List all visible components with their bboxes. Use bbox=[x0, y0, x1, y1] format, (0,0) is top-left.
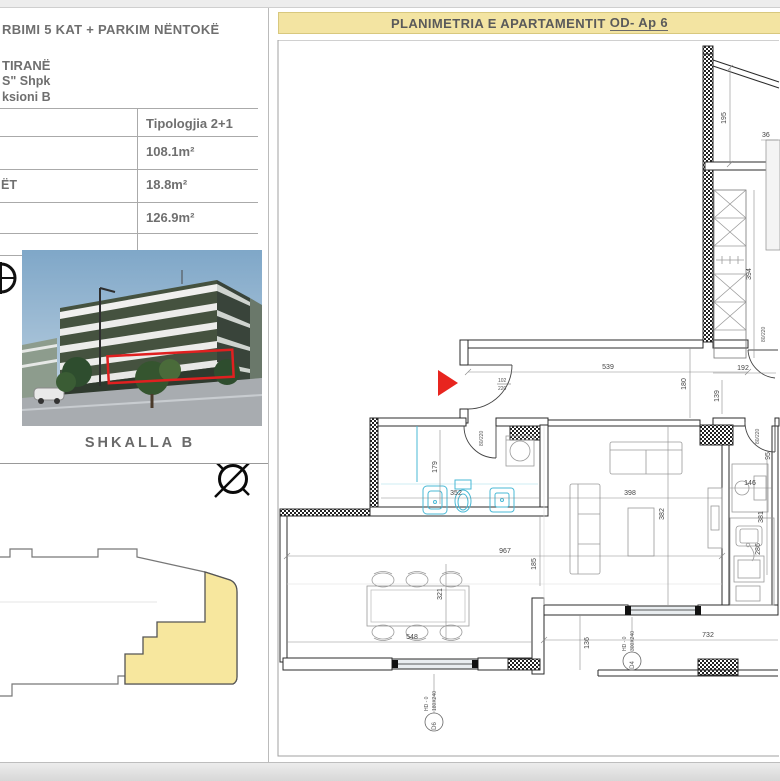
dim-732: 732 bbox=[702, 632, 714, 639]
window-code: HD - 0 bbox=[622, 636, 628, 651]
window-top-strip bbox=[0, 0, 780, 8]
bed-partial bbox=[766, 140, 780, 250]
area-value: 108.1m² bbox=[146, 144, 194, 159]
window-id: D6 bbox=[432, 722, 438, 730]
window-d6 bbox=[392, 659, 478, 669]
project-section: ksioni B bbox=[2, 90, 51, 104]
entry-door-height: 220 bbox=[498, 386, 507, 392]
dim-179: 179 bbox=[432, 461, 439, 473]
project-title: RBIMI 5 KAT + PARKIM NËNTOKË bbox=[2, 22, 220, 37]
dim-286: 286 bbox=[755, 543, 762, 555]
dim-192: 192 bbox=[737, 365, 749, 372]
window-d4 bbox=[625, 606, 701, 615]
typology-header: Tipologjia 2+1 bbox=[146, 116, 233, 131]
dim-36: 36 bbox=[762, 132, 770, 139]
dim-180: 180 bbox=[681, 378, 688, 390]
sheet-title-banner: PLANIMETRIA E APARTAMENTIT OD- Ap 6 bbox=[278, 12, 780, 34]
apartment-id: OD- Ap 6 bbox=[610, 15, 668, 31]
bedroom-door-size: 80/220 bbox=[761, 326, 767, 342]
floor-plan: 195 36 394 192 139 539 180 179 352 398 3… bbox=[270, 40, 780, 762]
compass-icon bbox=[0, 260, 20, 300]
sheet-title: PLANIMETRIA E APARTAMENTIT bbox=[391, 16, 606, 31]
table-row: ËT 18.8m² bbox=[0, 170, 258, 203]
dim-321: 321 bbox=[437, 588, 444, 600]
entry-door-width: 102 bbox=[498, 378, 507, 384]
staircase-caption: SHKALLA B bbox=[0, 435, 280, 451]
north-symbol-icon bbox=[215, 464, 251, 497]
dim-539: 539 bbox=[602, 364, 614, 371]
dim-398: 398 bbox=[624, 490, 636, 497]
dim-185: 185 bbox=[531, 558, 538, 570]
area-value: 18.8m² bbox=[146, 177, 187, 192]
dim-394: 394 bbox=[746, 268, 753, 280]
bath-door-size: 80/220 bbox=[479, 430, 485, 446]
dim-139: 139 bbox=[714, 390, 721, 402]
row-label-fragment: ËT bbox=[1, 178, 17, 192]
dim-136: 136 bbox=[584, 637, 591, 649]
window-code: HD - 0 bbox=[424, 696, 430, 711]
typology-table: Tipologjia 2+1 108.1m² ËT 18.8m² 126.9m² bbox=[0, 108, 258, 256]
project-city: TIRANË bbox=[2, 58, 50, 73]
dim-382: 382 bbox=[659, 508, 666, 520]
table-row: 126.9m² bbox=[0, 203, 258, 234]
dim-146: 146 bbox=[744, 480, 756, 487]
dim-195: 195 bbox=[721, 112, 728, 124]
dim-352: 352 bbox=[450, 490, 462, 497]
dim-95: 95 bbox=[765, 452, 772, 460]
table-header-row: Tipologjia 2+1 bbox=[0, 109, 258, 137]
window-id: D4 bbox=[630, 661, 636, 669]
kitchen-door-size: 80/220 bbox=[755, 428, 761, 444]
title-block-panel: RBIMI 5 KAT + PARKIM NËNTOKË TIRANË S" S… bbox=[0, 8, 269, 762]
dim-548: 548 bbox=[406, 634, 418, 641]
area-value: 126.9m² bbox=[146, 210, 194, 225]
window-bottom-strip bbox=[0, 762, 780, 781]
dim-381: 381 bbox=[758, 511, 765, 523]
table-row: 108.1m² bbox=[0, 137, 258, 170]
architectural-sheet: { "page": { "title_main": "PLANIMETRIA E… bbox=[0, 0, 780, 780]
window-size: 180X240 bbox=[432, 691, 438, 711]
window-size: 300X240 bbox=[630, 631, 636, 651]
key-plan bbox=[0, 464, 268, 770]
building-photo bbox=[22, 250, 262, 426]
project-company: S" Shpk bbox=[2, 74, 50, 88]
dim-967: 967 bbox=[499, 548, 511, 555]
